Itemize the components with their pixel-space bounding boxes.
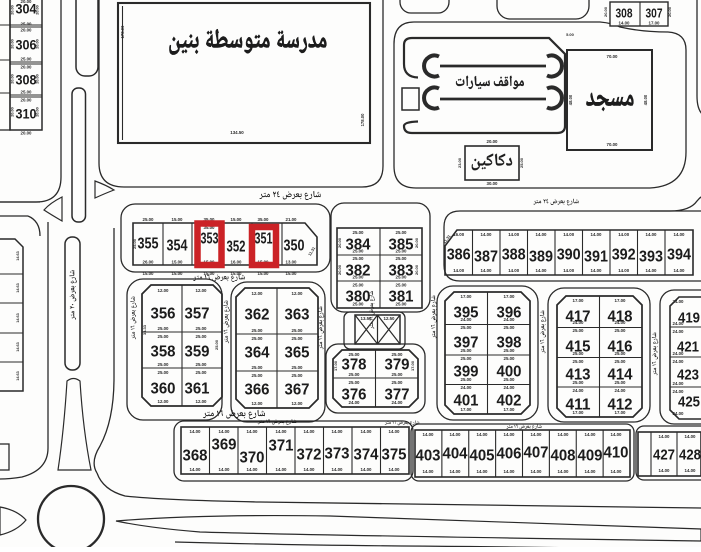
svg-text:14.00: 14.00 bbox=[685, 434, 697, 439]
svg-text:24.00: 24.00 bbox=[573, 388, 585, 393]
svg-text:373: 373 bbox=[325, 446, 350, 463]
svg-text:15.00: 15.00 bbox=[172, 271, 184, 276]
svg-text:352: 352 bbox=[227, 239, 246, 256]
svg-text:25.00: 25.00 bbox=[252, 365, 264, 370]
svg-text:14.63: 14.63 bbox=[16, 313, 20, 323]
svg-text:24.00: 24.00 bbox=[615, 388, 627, 393]
svg-text:20.00: 20.00 bbox=[21, 131, 33, 136]
svg-text:390: 390 bbox=[557, 247, 581, 264]
svg-text:20.00: 20.00 bbox=[11, 39, 15, 49]
svg-text:25.00: 25.00 bbox=[392, 352, 404, 357]
svg-text:25.00: 25.00 bbox=[353, 283, 365, 288]
svg-text:25.00: 25.00 bbox=[461, 356, 473, 361]
svg-text:17.00: 17.00 bbox=[333, 360, 338, 371]
svg-text:24.00: 24.00 bbox=[573, 320, 585, 325]
svg-text:24.00: 24.00 bbox=[392, 400, 404, 405]
svg-text:428: 428 bbox=[679, 446, 701, 463]
svg-text:15.00: 15.00 bbox=[231, 217, 243, 222]
svg-text:350: 350 bbox=[284, 238, 305, 255]
svg-text:12.00: 12.00 bbox=[292, 291, 304, 296]
svg-text:12.00: 12.00 bbox=[196, 399, 208, 404]
svg-text:25.00: 25.00 bbox=[353, 249, 365, 254]
svg-text:14.00: 14.00 bbox=[361, 467, 373, 472]
svg-text:25.00: 25.00 bbox=[196, 370, 208, 375]
svg-text:391: 391 bbox=[584, 249, 608, 266]
svg-text:364: 364 bbox=[245, 345, 270, 362]
svg-text:407: 407 bbox=[524, 445, 549, 462]
svg-text:20.00: 20.00 bbox=[667, 6, 672, 17]
svg-text:409: 409 bbox=[578, 448, 603, 465]
svg-text:14.00: 14.00 bbox=[508, 268, 520, 273]
svg-text:25.00: 25.00 bbox=[392, 372, 404, 377]
svg-text:353: 353 bbox=[201, 231, 219, 248]
svg-text:24.00: 24.00 bbox=[504, 385, 516, 390]
svg-text:361: 361 bbox=[185, 381, 210, 398]
svg-text:17.00: 17.00 bbox=[461, 294, 473, 299]
svg-text:14.00: 14.00 bbox=[361, 429, 373, 434]
svg-text:25.00: 25.00 bbox=[396, 230, 408, 235]
svg-text:24.00: 24.00 bbox=[673, 381, 685, 386]
svg-text:25.00: 25.00 bbox=[353, 230, 365, 235]
svg-text:20.00: 20.00 bbox=[603, 6, 608, 17]
svg-text:14.63: 14.63 bbox=[16, 251, 20, 261]
svg-text:14.00: 14.00 bbox=[585, 469, 597, 474]
svg-text:14.00: 14.00 bbox=[247, 429, 259, 434]
svg-text:25.00: 25.00 bbox=[353, 275, 365, 280]
svg-text:24.00: 24.00 bbox=[461, 385, 473, 390]
svg-text:14.00: 14.00 bbox=[685, 468, 697, 473]
svg-text:366: 366 bbox=[245, 382, 270, 399]
svg-text:14.00: 14.00 bbox=[504, 469, 516, 474]
svg-text:24.00: 24.00 bbox=[673, 299, 685, 304]
svg-text:394: 394 bbox=[667, 247, 691, 264]
svg-text:14.00: 14.00 bbox=[591, 232, 603, 237]
svg-text:14.00: 14.00 bbox=[276, 429, 288, 434]
svg-text:17.00: 17.00 bbox=[573, 410, 585, 415]
svg-text:14.00: 14.00 bbox=[659, 468, 671, 473]
svg-text:362: 362 bbox=[245, 307, 270, 324]
svg-text:14.00: 14.00 bbox=[276, 467, 288, 472]
svg-text:14.00: 14.00 bbox=[219, 429, 231, 434]
svg-text:25.00: 25.00 bbox=[396, 256, 408, 261]
svg-text:354: 354 bbox=[167, 238, 188, 255]
svg-text:23.00: 23.00 bbox=[457, 157, 462, 168]
svg-text:14.00: 14.00 bbox=[450, 469, 462, 474]
svg-text:357: 357 bbox=[185, 306, 210, 323]
svg-text:14.00: 14.00 bbox=[423, 432, 435, 437]
svg-text:360: 360 bbox=[151, 381, 176, 398]
svg-text:14.00: 14.00 bbox=[531, 432, 543, 437]
svg-text:25.00: 25.00 bbox=[292, 328, 304, 333]
svg-text:25.00: 25.00 bbox=[196, 326, 208, 331]
svg-text:14.00: 14.00 bbox=[389, 429, 401, 434]
svg-text:14.00: 14.00 bbox=[423, 469, 435, 474]
svg-text:14.00: 14.00 bbox=[481, 232, 493, 237]
svg-text:14.00: 14.00 bbox=[477, 469, 489, 474]
svg-text:14.00: 14.00 bbox=[504, 432, 516, 437]
svg-text:17.00: 17.00 bbox=[504, 407, 516, 412]
svg-text:17.00: 17.00 bbox=[615, 298, 627, 303]
svg-text:20.00: 20.00 bbox=[36, 39, 40, 49]
svg-text:178.00: 178.00 bbox=[120, 25, 125, 38]
svg-text:25.00: 25.00 bbox=[292, 365, 304, 370]
svg-text:14.00: 14.00 bbox=[453, 268, 465, 273]
svg-text:374: 374 bbox=[354, 447, 379, 464]
svg-text:14.00: 14.00 bbox=[477, 432, 489, 437]
svg-text:25.00: 25.00 bbox=[519, 157, 524, 168]
svg-text:25.00: 25.00 bbox=[615, 328, 627, 333]
svg-text:25.00: 25.00 bbox=[504, 377, 516, 382]
svg-text:14.00: 14.00 bbox=[190, 429, 202, 434]
svg-text:24.00: 24.00 bbox=[461, 317, 473, 322]
svg-text:14.00: 14.00 bbox=[508, 232, 520, 237]
svg-text:25.00: 25.00 bbox=[615, 359, 627, 364]
svg-text:14.00: 14.00 bbox=[219, 467, 231, 472]
svg-text:25.00: 25.00 bbox=[396, 249, 408, 254]
svg-text:14.00: 14.00 bbox=[611, 469, 623, 474]
svg-text:20.00: 20.00 bbox=[36, 74, 40, 84]
svg-text:14.63: 14.63 bbox=[16, 371, 20, 381]
svg-text:24.00: 24.00 bbox=[673, 321, 685, 326]
svg-text:368: 368 bbox=[183, 448, 208, 465]
svg-text:24.00: 24.00 bbox=[504, 317, 516, 322]
svg-text:308: 308 bbox=[16, 72, 37, 88]
svg-text:14.00: 14.00 bbox=[585, 432, 597, 437]
svg-text:15.00: 15.00 bbox=[231, 271, 243, 276]
svg-text:14.00: 14.00 bbox=[646, 268, 658, 273]
svg-text:405: 405 bbox=[470, 448, 495, 465]
svg-text:25.00: 25.00 bbox=[353, 302, 365, 307]
svg-text:5.00: 5.00 bbox=[566, 32, 575, 37]
svg-text:307: 307 bbox=[646, 6, 663, 20]
svg-text:14.00: 14.00 bbox=[450, 432, 462, 437]
svg-text:20.00: 20.00 bbox=[337, 237, 342, 248]
svg-text:20.00: 20.00 bbox=[414, 237, 419, 248]
svg-text:20.00: 20.00 bbox=[414, 264, 419, 275]
svg-text:25.00: 25.00 bbox=[252, 328, 264, 333]
svg-text:20.00: 20.00 bbox=[21, 0, 33, 4]
svg-text:351: 351 bbox=[255, 231, 273, 248]
svg-text:26.00: 26.00 bbox=[143, 260, 155, 265]
svg-text:20.00: 20.00 bbox=[36, 107, 40, 117]
svg-text:24.00: 24.00 bbox=[349, 400, 361, 405]
svg-text:404: 404 bbox=[443, 446, 468, 463]
svg-text:25.00: 25.00 bbox=[396, 283, 408, 288]
svg-text:70.00: 70.00 bbox=[607, 54, 619, 59]
svg-text:371: 371 bbox=[269, 438, 294, 455]
svg-text:12.00: 12.00 bbox=[158, 399, 170, 404]
svg-text:392: 392 bbox=[612, 247, 636, 264]
svg-text:14.00: 14.00 bbox=[618, 268, 630, 273]
svg-text:25.00: 25.00 bbox=[158, 334, 170, 339]
svg-text:25.00: 25.00 bbox=[21, 22, 33, 27]
svg-text:12.00: 12.00 bbox=[292, 401, 304, 406]
svg-text:308: 308 bbox=[616, 6, 633, 20]
svg-text:48.00: 48.00 bbox=[568, 94, 573, 105]
svg-text:367: 367 bbox=[285, 382, 310, 399]
svg-text:25.00: 25.00 bbox=[132, 238, 137, 249]
svg-text:14.00: 14.00 bbox=[304, 429, 316, 434]
svg-text:25.00: 25.00 bbox=[461, 325, 473, 330]
svg-text:14.00: 14.00 bbox=[389, 467, 401, 472]
svg-text:14.00: 14.00 bbox=[646, 232, 658, 237]
svg-text:372: 372 bbox=[297, 447, 322, 464]
svg-text:25.00: 25.00 bbox=[615, 351, 627, 356]
svg-text:403: 403 bbox=[416, 448, 441, 465]
svg-text:25.00: 25.00 bbox=[158, 370, 170, 375]
svg-text:20.00: 20.00 bbox=[21, 98, 33, 103]
svg-text:14.00: 14.00 bbox=[536, 268, 548, 273]
svg-text:25.00: 25.00 bbox=[396, 302, 408, 307]
svg-text:30.00: 30.00 bbox=[487, 181, 499, 186]
svg-text:14.00: 14.00 bbox=[563, 232, 575, 237]
svg-text:25.00: 25.00 bbox=[615, 380, 627, 385]
svg-text:358: 358 bbox=[151, 344, 176, 361]
svg-text:393: 393 bbox=[639, 249, 663, 266]
svg-text:24.00: 24.00 bbox=[673, 329, 685, 334]
svg-text:389: 389 bbox=[529, 249, 553, 266]
svg-text:15.00: 15.00 bbox=[143, 271, 155, 276]
svg-text:14.00: 14.00 bbox=[481, 268, 493, 273]
svg-text:25.00: 25.00 bbox=[504, 348, 516, 353]
svg-text:14.63: 14.63 bbox=[16, 342, 20, 352]
svg-text:25.00: 25.00 bbox=[504, 356, 516, 361]
svg-text:14.00: 14.00 bbox=[190, 467, 202, 472]
svg-text:12.00: 12.00 bbox=[158, 288, 170, 293]
svg-text:25.00: 25.00 bbox=[158, 326, 170, 331]
svg-text:310: 310 bbox=[16, 106, 37, 122]
svg-text:25.00: 25.00 bbox=[392, 380, 404, 385]
svg-text:20.00: 20.00 bbox=[36, 5, 40, 15]
svg-text:12.00: 12.00 bbox=[252, 291, 264, 296]
svg-text:20.00: 20.00 bbox=[337, 264, 342, 275]
svg-text:25.00: 25.00 bbox=[252, 336, 264, 341]
svg-text:33.33: 33.33 bbox=[142, 324, 147, 335]
svg-text:15.00: 15.00 bbox=[258, 271, 270, 276]
svg-text:25.00: 25.00 bbox=[504, 325, 516, 330]
svg-text:14.00: 14.00 bbox=[332, 429, 344, 434]
svg-text:355: 355 bbox=[138, 236, 159, 253]
svg-text:17.00: 17.00 bbox=[504, 294, 516, 299]
svg-text:408: 408 bbox=[551, 448, 576, 465]
svg-text:14.00: 14.00 bbox=[591, 268, 603, 273]
svg-text:386: 386 bbox=[447, 247, 471, 264]
svg-text:14.00: 14.00 bbox=[304, 467, 316, 472]
svg-text:363: 363 bbox=[285, 307, 310, 324]
svg-text:25.00: 25.00 bbox=[461, 377, 473, 382]
svg-text:370: 370 bbox=[240, 450, 265, 467]
svg-text:15.00: 15.00 bbox=[172, 260, 184, 265]
svg-text:17.00: 17.00 bbox=[615, 410, 627, 415]
svg-text:25.00: 25.00 bbox=[573, 328, 585, 333]
svg-text:25.00: 25.00 bbox=[573, 359, 585, 364]
svg-text:14.00: 14.00 bbox=[659, 434, 671, 439]
svg-text:25.00: 25.00 bbox=[573, 351, 585, 356]
svg-text:14.00: 14.00 bbox=[674, 268, 686, 273]
svg-text:24.00: 24.00 bbox=[673, 389, 685, 394]
svg-text:35.00: 35.00 bbox=[258, 217, 270, 222]
svg-text:48.00: 48.00 bbox=[643, 94, 648, 105]
svg-text:17.00: 17.00 bbox=[410, 360, 415, 371]
svg-text:14.00: 14.00 bbox=[531, 469, 543, 474]
svg-text:70.00: 70.00 bbox=[607, 142, 619, 147]
svg-text:25.00: 25.00 bbox=[158, 362, 170, 367]
svg-text:21.00: 21.00 bbox=[286, 217, 298, 222]
svg-text:24.00: 24.00 bbox=[673, 351, 685, 356]
svg-text:25.00: 25.00 bbox=[292, 373, 304, 378]
svg-text:25.00: 25.00 bbox=[196, 334, 208, 339]
svg-text:369: 369 bbox=[212, 437, 237, 454]
svg-text:427: 427 bbox=[653, 446, 675, 463]
svg-text:24.00: 24.00 bbox=[615, 320, 627, 325]
svg-text:24.00: 24.00 bbox=[673, 411, 685, 416]
svg-text:359: 359 bbox=[185, 344, 210, 361]
svg-text:15.00: 15.00 bbox=[172, 217, 184, 222]
svg-text:387: 387 bbox=[474, 249, 498, 266]
svg-text:20.00: 20.00 bbox=[11, 74, 15, 84]
svg-text:25.00: 25.00 bbox=[143, 217, 155, 222]
svg-text:20.00: 20.00 bbox=[21, 28, 33, 33]
svg-text:25.00: 25.00 bbox=[349, 352, 361, 357]
svg-text:14.00: 14.00 bbox=[536, 232, 548, 237]
svg-text:12.00: 12.00 bbox=[196, 288, 208, 293]
svg-text:16.00: 16.00 bbox=[453, 232, 465, 237]
svg-text:406: 406 bbox=[497, 446, 522, 463]
svg-text:356: 356 bbox=[151, 306, 176, 323]
svg-text:14.00: 14.00 bbox=[618, 232, 630, 237]
svg-text:17.00: 17.00 bbox=[461, 407, 473, 412]
svg-text:14.00: 14.00 bbox=[247, 467, 259, 472]
svg-text:25.00: 25.00 bbox=[349, 372, 361, 377]
svg-text:25.00: 25.00 bbox=[196, 362, 208, 367]
svg-text:20.00: 20.00 bbox=[21, 65, 33, 70]
svg-text:12.50: 12.50 bbox=[384, 316, 396, 321]
svg-text:25.00: 25.00 bbox=[349, 380, 361, 385]
svg-text:14.00: 14.00 bbox=[611, 432, 623, 437]
svg-text:25.00: 25.00 bbox=[21, 90, 33, 95]
svg-text:14.00: 14.00 bbox=[558, 469, 570, 474]
svg-text:25.00: 25.00 bbox=[21, 57, 33, 62]
svg-text:17.00: 17.00 bbox=[573, 298, 585, 303]
svg-text:134.50: 134.50 bbox=[230, 130, 244, 135]
svg-text:25.00: 25.00 bbox=[353, 256, 365, 261]
svg-text:306: 306 bbox=[16, 37, 37, 53]
svg-text:25.00: 25.00 bbox=[214, 339, 219, 350]
svg-text:388: 388 bbox=[502, 247, 526, 264]
svg-text:24.00: 24.00 bbox=[673, 359, 685, 364]
svg-text:25.00: 25.00 bbox=[573, 380, 585, 385]
svg-text:14.00: 14.00 bbox=[332, 467, 344, 472]
svg-text:25.00: 25.00 bbox=[252, 373, 264, 378]
svg-text:15.00: 15.00 bbox=[286, 271, 298, 276]
svg-text:25.00: 25.00 bbox=[292, 336, 304, 341]
svg-text:14.00: 14.00 bbox=[558, 432, 570, 437]
svg-text:20.00: 20.00 bbox=[487, 139, 499, 144]
svg-text:13.00: 13.00 bbox=[286, 260, 298, 265]
svg-text:375: 375 bbox=[382, 447, 407, 464]
svg-text:25.00: 25.00 bbox=[396, 275, 408, 280]
svg-text:178.00: 178.00 bbox=[360, 113, 365, 126]
svg-text:25.00: 25.00 bbox=[461, 348, 473, 353]
svg-text:17.00: 17.00 bbox=[649, 21, 661, 26]
svg-text:16.00: 16.00 bbox=[231, 260, 243, 265]
svg-text:14.00: 14.00 bbox=[563, 268, 575, 273]
svg-text:410: 410 bbox=[604, 445, 629, 462]
svg-text:12.00: 12.00 bbox=[252, 401, 264, 406]
svg-text:425: 425 bbox=[678, 393, 700, 410]
svg-text:20.00: 20.00 bbox=[11, 107, 15, 117]
svg-text:365: 365 bbox=[285, 345, 310, 362]
svg-text:14.00: 14.00 bbox=[674, 232, 686, 237]
svg-text:14.00: 14.00 bbox=[619, 21, 631, 26]
svg-text:20.00: 20.00 bbox=[11, 5, 15, 15]
svg-text:14.63: 14.63 bbox=[16, 283, 20, 293]
